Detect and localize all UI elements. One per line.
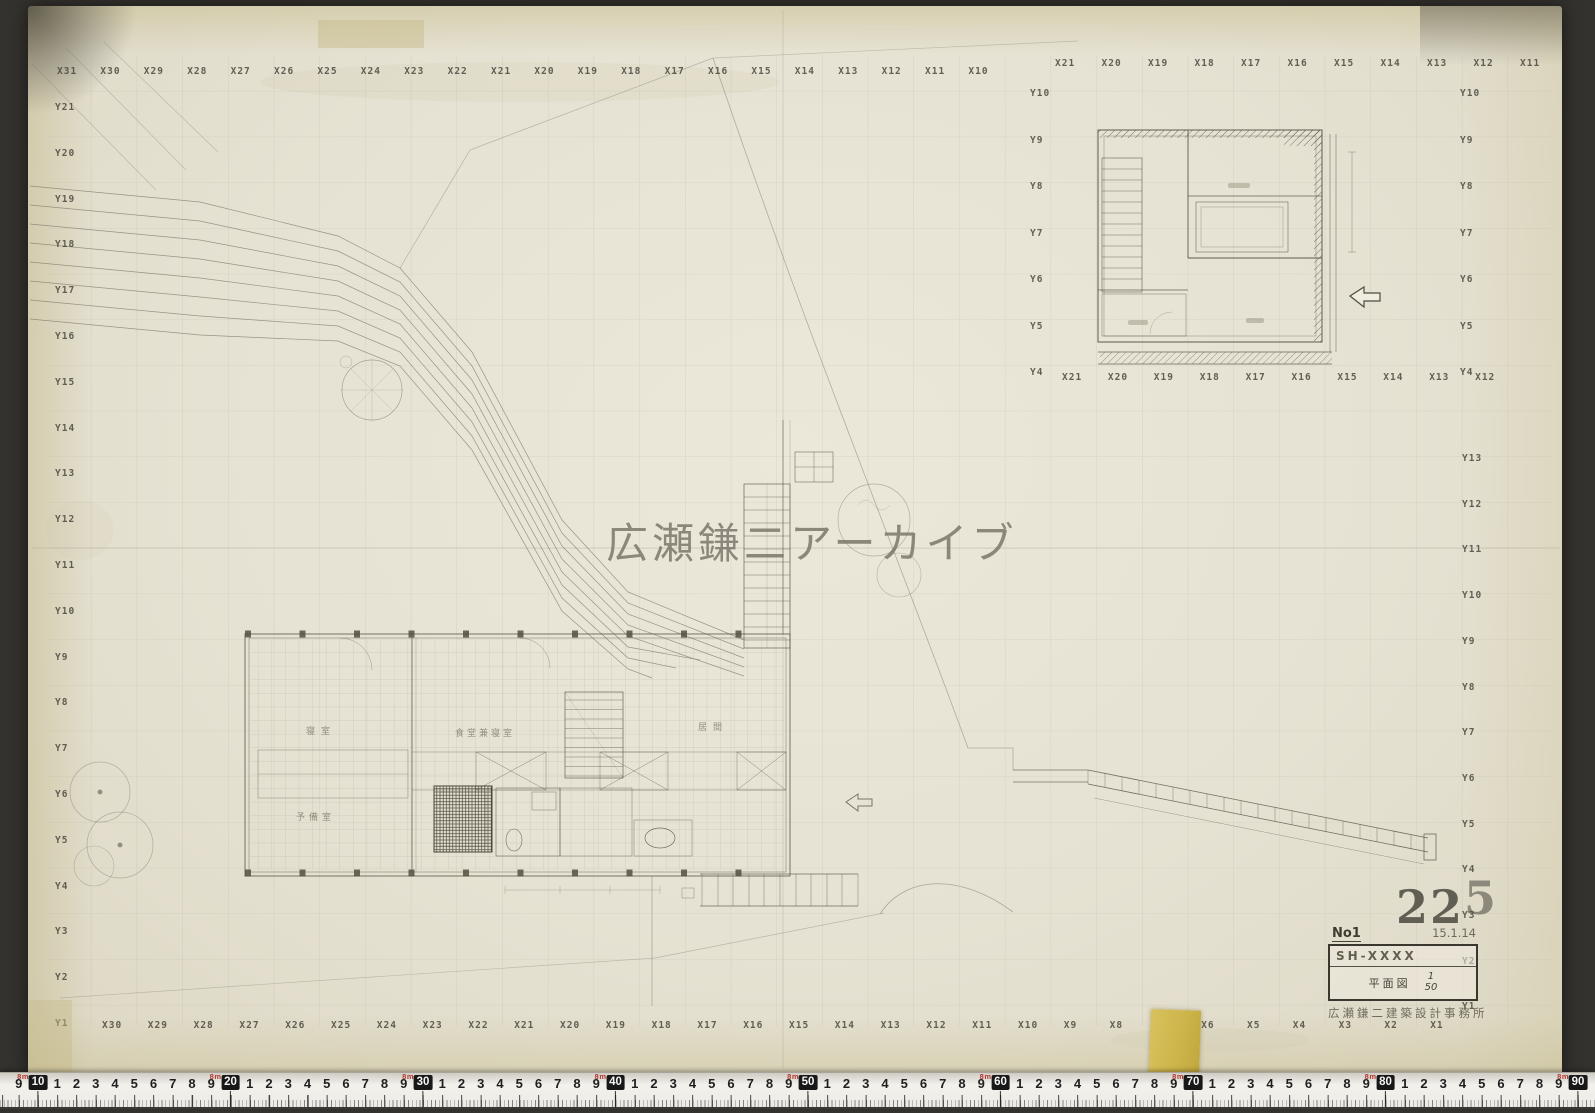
scale-numerator: 1 xyxy=(1428,972,1434,982)
grid-label: Y7 xyxy=(1462,727,1475,738)
ruler-digit: 5 xyxy=(1093,1076,1100,1091)
grid-label: Y8 xyxy=(1030,181,1043,192)
ruler-box: 60 xyxy=(991,1075,1010,1090)
grid-label: Y18 xyxy=(55,239,75,250)
ruler-digit: 7 xyxy=(169,1076,176,1091)
grid-label: X28 xyxy=(187,66,207,77)
ruler-box: 10 xyxy=(29,1075,48,1090)
ruler-digit: 2 xyxy=(650,1076,657,1091)
ruler-digit: 1 xyxy=(1209,1076,1216,1091)
grid-label: X23 xyxy=(404,66,424,77)
ruler-digit: 7 xyxy=(1132,1076,1139,1091)
grid-label: Y5 xyxy=(1462,819,1475,830)
grid-label: X11 xyxy=(972,1020,992,1031)
grid-label: X11 xyxy=(1520,58,1540,69)
grid-label: Y16 xyxy=(55,331,75,342)
grid-label: X14 xyxy=(1381,58,1401,69)
grid-label: Y8 xyxy=(1462,682,1475,693)
grid-label: X17 xyxy=(665,66,685,77)
ruler-digit: 4 xyxy=(881,1076,888,1091)
ruler-digit: 2 xyxy=(843,1076,850,1091)
grid-label: X25 xyxy=(317,66,337,77)
grid-label: X14 xyxy=(835,1020,855,1031)
grid-label: X12 xyxy=(1475,372,1495,383)
grid-label: X20 xyxy=(534,66,554,77)
ruler-m: 8m xyxy=(1365,1072,1377,1081)
grid-label: X18 xyxy=(621,66,641,77)
grid-label: X20 xyxy=(1108,372,1128,383)
grid-label: X21 xyxy=(491,66,511,77)
ruler-digit: 8 xyxy=(381,1076,388,1091)
grid-label: Y10 xyxy=(55,606,75,617)
ruler-box: 20 xyxy=(221,1075,240,1090)
grid-label: X26 xyxy=(274,66,294,77)
ruler-digit: 2 xyxy=(1035,1076,1042,1091)
ruler-digit: 3 xyxy=(477,1076,484,1091)
ruler-digit: 4 xyxy=(111,1076,118,1091)
grid-label: Y8 xyxy=(55,697,68,708)
title-block: No1 15.1.14 SH-XXXX 平面図 1 50 広瀬鎌二建築設計事務所 xyxy=(1328,926,1478,1021)
grid-label: Y6 xyxy=(1460,274,1473,285)
ruler-digit: 3 xyxy=(285,1076,292,1091)
ruler-digit: 3 xyxy=(862,1076,869,1091)
grid-label: X30 xyxy=(100,66,120,77)
ruler-digit: 1 xyxy=(1016,1076,1023,1091)
grid-label: X12 xyxy=(882,66,902,77)
grid-label: X6 xyxy=(1201,1020,1214,1031)
grid-label: X14 xyxy=(1383,372,1403,383)
grid-label: Y4 xyxy=(55,881,68,892)
grid-label: Y4 xyxy=(1460,367,1473,378)
ruler-digit: 2 xyxy=(73,1076,80,1091)
ruler-digit: 8 xyxy=(958,1076,965,1091)
grid-label: Y21 xyxy=(55,102,75,113)
grid-label: Y10 xyxy=(1462,590,1482,601)
grid-label: Y1 xyxy=(55,1018,68,1029)
grid-label: X2 xyxy=(1384,1020,1397,1031)
ruler-digit: 1 xyxy=(54,1076,61,1091)
grid-label: X16 xyxy=(1292,372,1312,383)
grid-label: Y9 xyxy=(1462,636,1475,647)
grid-label: Y8 xyxy=(1460,181,1473,192)
ruler-digit: 3 xyxy=(92,1076,99,1091)
grid-label: X21 xyxy=(1055,58,1075,69)
ruler-digit: 3 xyxy=(1055,1076,1062,1091)
grid-label: X16 xyxy=(743,1020,763,1031)
grid-label: X15 xyxy=(1337,372,1357,383)
grid-label: X21 xyxy=(1062,372,1082,383)
grid-label: X16 xyxy=(1288,58,1308,69)
scanned-drawing: X31X30X29X28X27X26X25X24X23X22X21X20X19X… xyxy=(0,0,1595,1113)
grid-label: X30 xyxy=(102,1020,122,1031)
grid-label: X21 xyxy=(514,1020,534,1031)
ruler-digit: 5 xyxy=(901,1076,908,1091)
ruler-digit: 5 xyxy=(1286,1076,1293,1091)
grid-label: Y5 xyxy=(55,835,68,846)
scale-denominator: 50 xyxy=(1425,983,1438,993)
ruler-digit: 3 xyxy=(670,1076,677,1091)
ruler-digit: 7 xyxy=(747,1076,754,1091)
project-code: SH-XXXX xyxy=(1330,946,1476,967)
grid-label: Y6 xyxy=(55,789,68,800)
grid-label: Y15 xyxy=(55,377,75,388)
drawing-type: 平面図 xyxy=(1369,975,1411,991)
grid-label: X5 xyxy=(1247,1020,1260,1031)
ruler-digit: 6 xyxy=(920,1076,927,1091)
grid-label: X19 xyxy=(578,66,598,77)
ruler-digit: 4 xyxy=(689,1076,696,1091)
ruler-box: 50 xyxy=(799,1075,818,1090)
grid-label: Y12 xyxy=(55,514,75,525)
grid-label: Y13 xyxy=(1462,453,1482,464)
grid-label: X13 xyxy=(1427,58,1447,69)
ruler-digit: 8 xyxy=(1536,1076,1543,1091)
ruler-digit: 8 xyxy=(1343,1076,1350,1091)
ruler-digit: 1 xyxy=(439,1076,446,1091)
grid-label: Y9 xyxy=(1460,135,1473,146)
grid-label: Y19 xyxy=(55,194,75,205)
ruler-digit: 2 xyxy=(1420,1076,1427,1091)
ruler-box: 30 xyxy=(414,1075,433,1090)
architect-office-name: 広瀬鎌二建築設計事務所 xyxy=(1328,1005,1478,1021)
ruler-digit: 5 xyxy=(1478,1076,1485,1091)
grid-label: Y12 xyxy=(1462,499,1482,510)
grid-label: X13 xyxy=(881,1020,901,1031)
ruler-digit: 4 xyxy=(1459,1076,1466,1091)
grid-label: X19 xyxy=(1148,58,1168,69)
ruler-digit: 4 xyxy=(1266,1076,1273,1091)
grid-label: Y6 xyxy=(1030,274,1043,285)
grid-label: Y9 xyxy=(55,652,68,663)
ruler-box: 80 xyxy=(1376,1075,1395,1090)
grid-label: X10 xyxy=(968,66,988,77)
grid-label: Y7 xyxy=(1030,228,1043,239)
room-label: 食堂兼寝室 xyxy=(455,726,515,739)
stamp-digit-raised: 5 xyxy=(1464,871,1498,925)
ruler-digit: 7 xyxy=(362,1076,369,1091)
grid-label: X31 xyxy=(57,66,77,77)
grid-label: Y14 xyxy=(55,423,75,434)
grid-label: X24 xyxy=(361,66,381,77)
grid-label: X17 xyxy=(697,1020,717,1031)
grid-label: X28 xyxy=(194,1020,214,1031)
ruler-digit: 7 xyxy=(1324,1076,1331,1091)
grid-label: Y20 xyxy=(55,148,75,159)
grid-label: X23 xyxy=(423,1020,443,1031)
grid-label: Y7 xyxy=(1460,228,1473,239)
grid-label: X12 xyxy=(926,1020,946,1031)
grid-label: X29 xyxy=(144,66,164,77)
ruler-digit: 1 xyxy=(824,1076,831,1091)
ruler-m: 8m xyxy=(1557,1072,1569,1081)
ruler-m: 8m xyxy=(980,1072,992,1081)
grid-label: X20 xyxy=(1102,58,1122,69)
grid-label: X7 xyxy=(1155,1020,1168,1031)
drawing-date: 15.1.14 xyxy=(1432,926,1476,940)
room-label: 居間 xyxy=(698,720,728,733)
ruler-digit: 6 xyxy=(1305,1076,1312,1091)
ruler-box: 70 xyxy=(1184,1075,1203,1090)
grid-label: Y17 xyxy=(55,285,75,296)
ruler-digit: 6 xyxy=(342,1076,349,1091)
grid-label: X27 xyxy=(239,1020,259,1031)
ruler-m: 8m xyxy=(402,1072,414,1081)
ruler-digit: 6 xyxy=(727,1076,734,1091)
grid-label: X1 xyxy=(1430,1020,1443,1031)
ruler-digit: 8 xyxy=(1151,1076,1158,1091)
grid-label: X16 xyxy=(708,66,728,77)
ruler-digit: 1 xyxy=(631,1076,638,1091)
ruler-digit: 6 xyxy=(1112,1076,1119,1091)
ruler-digit: 1 xyxy=(246,1076,253,1091)
ruler-digit: 3 xyxy=(1247,1076,1254,1091)
grid-label: X13 xyxy=(838,66,858,77)
ruler-digit: 5 xyxy=(323,1076,330,1091)
grid-label: X3 xyxy=(1339,1020,1352,1031)
grid-label: Y4 xyxy=(1030,367,1043,378)
grid-label: X9 xyxy=(1064,1020,1077,1031)
ruler-digit: 4 xyxy=(1074,1076,1081,1091)
grid-label: X15 xyxy=(751,66,771,77)
grid-label: X13 xyxy=(1429,372,1449,383)
grid-label: X12 xyxy=(1474,58,1494,69)
measuring-tape-ruler: 98m101234567898m201234567898m30123456789… xyxy=(0,1072,1595,1109)
archive-watermark: 広瀬鎌二アーカイブ xyxy=(606,510,1017,571)
main-floor-plan xyxy=(245,634,790,894)
title-block-box: SH-XXXX 平面図 1 50 xyxy=(1328,944,1478,1001)
ruler-box: 40 xyxy=(606,1075,625,1090)
scale-fraction: 1 50 xyxy=(1425,972,1438,993)
grid-label: X20 xyxy=(560,1020,580,1031)
grid-label: X17 xyxy=(1241,58,1261,69)
ruler-digit: 2 xyxy=(458,1076,465,1091)
ruler-m: 8m xyxy=(17,1072,29,1081)
grid-label: X18 xyxy=(652,1020,672,1031)
grid-label: Y10 xyxy=(1460,88,1480,99)
grid-label: X10 xyxy=(1018,1020,1038,1031)
grid-label: X15 xyxy=(789,1020,809,1031)
grid-label: Y13 xyxy=(55,468,75,479)
grid-label: Y2 xyxy=(55,972,68,983)
ruler-digit: 1 xyxy=(1401,1076,1408,1091)
grid-label: X14 xyxy=(795,66,815,77)
ruler-digit: 8 xyxy=(573,1076,580,1091)
ruler-digit: 7 xyxy=(1517,1076,1524,1091)
ruler-digit: 6 xyxy=(150,1076,157,1091)
grid-label: Y6 xyxy=(1462,773,1475,784)
grid-label: Y11 xyxy=(55,560,75,571)
grid-label: Y5 xyxy=(1030,321,1043,332)
grid-label: X17 xyxy=(1246,372,1266,383)
grid-label: X19 xyxy=(1154,372,1174,383)
ruler-digit: 6 xyxy=(535,1076,542,1091)
grid-label: Y9 xyxy=(1030,135,1043,146)
grid-label: X29 xyxy=(148,1020,168,1031)
ruler-m: 8m xyxy=(595,1072,607,1081)
ruler-digit: 2 xyxy=(1228,1076,1235,1091)
grid-label: X18 xyxy=(1195,58,1215,69)
grid-label: X18 xyxy=(1200,372,1220,383)
room-label: 寝室 xyxy=(306,724,336,737)
ruler-digit: 5 xyxy=(708,1076,715,1091)
ruler-digit: 5 xyxy=(131,1076,138,1091)
grid-label: X24 xyxy=(377,1020,397,1031)
ruler-digit: 7 xyxy=(939,1076,946,1091)
ruler-digit: 2 xyxy=(265,1076,272,1091)
ruler-digit: 5 xyxy=(516,1076,523,1091)
ruler-m: 8m xyxy=(1172,1072,1184,1081)
grid-label: Y7 xyxy=(55,743,68,754)
ruler-digit: 8 xyxy=(188,1076,195,1091)
grid-label: X15 xyxy=(1334,58,1354,69)
ruler-digit: 6 xyxy=(1497,1076,1504,1091)
grid-label: Y5 xyxy=(1460,321,1473,332)
ruler-digit: 8 xyxy=(766,1076,773,1091)
grid-label: X4 xyxy=(1293,1020,1306,1031)
grid-label: X8 xyxy=(1110,1020,1123,1031)
grid-label: Y3 xyxy=(55,926,68,937)
ruler-digit: 3 xyxy=(1440,1076,1447,1091)
grid-label: X22 xyxy=(468,1020,488,1031)
grid-label: X26 xyxy=(285,1020,305,1031)
ruler-digit: 4 xyxy=(496,1076,503,1091)
grid-label: Y10 xyxy=(1030,88,1050,99)
ruler-tick-marks xyxy=(0,1090,1595,1107)
grid-label: X19 xyxy=(606,1020,626,1031)
ruler-m: 8m xyxy=(210,1072,222,1081)
grid-label: X27 xyxy=(231,66,251,77)
ruler-digit: 7 xyxy=(554,1076,561,1091)
grid-label: X11 xyxy=(925,66,945,77)
ruler-box: 90 xyxy=(1569,1075,1588,1090)
grid-label: X22 xyxy=(448,66,468,77)
sheet-number: No1 xyxy=(1332,926,1361,942)
grid-label: X25 xyxy=(331,1020,351,1031)
ruler-m: 8m xyxy=(787,1072,799,1081)
grid-label: Y11 xyxy=(1462,544,1482,555)
ruler-digit: 4 xyxy=(304,1076,311,1091)
room-label: 予備室 xyxy=(296,810,335,823)
